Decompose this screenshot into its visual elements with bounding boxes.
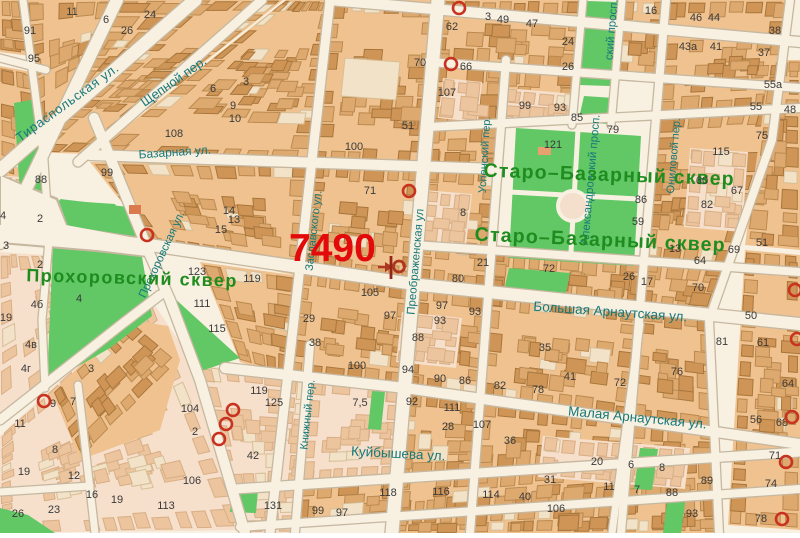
svg-text:11: 11 [603, 481, 614, 493]
svg-text:99: 99 [519, 100, 531, 112]
svg-text:19: 19 [0, 312, 12, 324]
svg-text:38: 38 [769, 25, 781, 37]
svg-text:55а: 55а [764, 79, 783, 91]
svg-text:89: 89 [701, 475, 713, 487]
svg-text:88: 88 [412, 332, 424, 344]
svg-text:51: 51 [756, 237, 768, 249]
svg-text:123: 123 [188, 266, 206, 278]
svg-text:60: 60 [696, 175, 708, 187]
svg-text:11: 11 [66, 6, 77, 18]
svg-text:56: 56 [750, 414, 762, 426]
svg-text:37: 37 [758, 47, 770, 59]
svg-text:78: 78 [532, 384, 544, 396]
svg-text:111: 111 [444, 402, 461, 414]
svg-text:81: 81 [716, 336, 728, 348]
svg-text:48: 48 [784, 104, 796, 116]
svg-text:3: 3 [485, 11, 491, 23]
svg-text:62: 62 [446, 21, 458, 33]
svg-text:21: 21 [477, 257, 489, 269]
svg-text:100: 100 [345, 141, 363, 153]
svg-text:121: 121 [544, 139, 562, 151]
svg-text:2: 2 [37, 213, 43, 225]
svg-text:28: 28 [442, 421, 454, 433]
svg-text:13: 13 [228, 214, 240, 226]
svg-text:125: 125 [265, 397, 283, 409]
svg-text:66: 66 [460, 61, 472, 73]
svg-text:76: 76 [671, 366, 683, 378]
svg-text:93: 93 [554, 102, 566, 114]
svg-text:80: 80 [452, 273, 464, 285]
svg-text:6: 6 [210, 83, 216, 95]
svg-text:95: 95 [28, 53, 40, 65]
svg-text:113: 113 [157, 500, 175, 512]
svg-text:59: 59 [632, 216, 644, 228]
svg-text:71: 71 [364, 185, 376, 197]
svg-text:51: 51 [402, 120, 414, 132]
svg-text:4б: 4б [31, 299, 43, 311]
svg-text:43а: 43а [679, 41, 698, 53]
svg-text:24: 24 [562, 36, 574, 48]
svg-text:7: 7 [634, 484, 640, 496]
svg-text:82: 82 [494, 380, 506, 392]
svg-text:8: 8 [52, 444, 58, 456]
svg-text:3: 3 [3, 240, 9, 252]
svg-text:119: 119 [243, 273, 261, 285]
svg-text:90: 90 [434, 373, 446, 385]
svg-text:16: 16 [645, 5, 657, 17]
svg-text:26: 26 [12, 508, 24, 520]
svg-text:75: 75 [756, 130, 768, 142]
svg-text:29: 29 [303, 313, 315, 325]
svg-text:47: 47 [526, 18, 538, 30]
svg-text:72: 72 [614, 377, 626, 389]
svg-text:15: 15 [215, 224, 227, 236]
svg-text:70: 70 [692, 282, 704, 294]
svg-text:92: 92 [406, 396, 418, 408]
svg-text:3: 3 [243, 76, 249, 88]
svg-text:105: 105 [361, 287, 379, 299]
svg-text:2: 2 [37, 259, 43, 271]
svg-text:114: 114 [482, 489, 500, 501]
svg-text:79: 79 [607, 124, 619, 136]
svg-text:86: 86 [635, 194, 647, 206]
svg-text:8: 8 [659, 462, 665, 474]
svg-text:41: 41 [564, 371, 576, 383]
svg-text:11: 11 [14, 418, 25, 430]
svg-text:99: 99 [312, 505, 324, 517]
svg-text:99: 99 [101, 167, 113, 179]
svg-text:93: 93 [434, 315, 446, 327]
svg-text:10: 10 [229, 113, 241, 125]
svg-text:2: 2 [192, 426, 198, 438]
svg-text:3: 3 [88, 363, 94, 375]
svg-text:116: 116 [432, 486, 450, 498]
svg-text:38: 38 [309, 337, 321, 349]
svg-text:19: 19 [18, 466, 30, 478]
svg-text:17: 17 [641, 276, 653, 288]
svg-text:118: 118 [379, 487, 397, 499]
svg-text:104: 104 [181, 403, 199, 415]
svg-text:50: 50 [745, 310, 757, 322]
svg-text:9: 9 [230, 100, 236, 112]
svg-text:93: 93 [469, 306, 481, 318]
svg-text:16: 16 [86, 489, 98, 501]
svg-text:4: 4 [0, 210, 6, 222]
svg-text:55: 55 [750, 101, 762, 113]
svg-text:46: 46 [690, 12, 702, 24]
svg-text:97: 97 [336, 507, 348, 519]
svg-text:82: 82 [701, 199, 713, 211]
svg-text:6: 6 [628, 459, 634, 471]
svg-text:41: 41 [710, 41, 722, 53]
svg-text:20: 20 [591, 456, 603, 468]
svg-text:64: 64 [782, 378, 794, 390]
svg-text:72: 72 [543, 263, 555, 275]
svg-text:108: 108 [165, 128, 183, 140]
svg-text:106: 106 [547, 503, 565, 515]
svg-text:107: 107 [473, 419, 491, 431]
svg-text:35: 35 [539, 342, 551, 354]
svg-text:97: 97 [436, 300, 448, 312]
svg-text:93: 93 [686, 508, 698, 520]
svg-text:4в: 4в [25, 339, 37, 351]
svg-text:115: 115 [208, 323, 226, 335]
svg-text:26: 26 [562, 61, 574, 73]
svg-text:97: 97 [384, 310, 396, 322]
svg-text:86: 86 [459, 375, 471, 387]
svg-text:88: 88 [35, 174, 47, 186]
svg-text:4: 4 [76, 293, 82, 305]
svg-text:131: 131 [264, 500, 282, 512]
svg-text:40: 40 [519, 491, 531, 503]
svg-text:85: 85 [571, 112, 583, 124]
svg-text:119: 119 [250, 385, 268, 397]
svg-text:115: 115 [712, 146, 730, 158]
svg-text:107: 107 [438, 87, 456, 99]
svg-text:26: 26 [623, 271, 635, 283]
svg-text:23: 23 [48, 504, 60, 516]
svg-text:7490: 7490 [289, 227, 376, 270]
svg-text:36: 36 [504, 435, 516, 447]
svg-text:6: 6 [103, 14, 109, 26]
svg-text:74: 74 [765, 478, 777, 490]
svg-text:26: 26 [121, 25, 133, 37]
svg-text:100: 100 [348, 360, 366, 372]
svg-text:7,5: 7,5 [352, 397, 367, 409]
svg-text:13: 13 [669, 243, 681, 255]
svg-text:24: 24 [144, 9, 156, 21]
svg-text:61: 61 [757, 337, 769, 349]
svg-text:31: 31 [544, 474, 556, 486]
svg-text:69: 69 [728, 244, 740, 256]
svg-text:111: 111 [194, 298, 211, 310]
svg-text:91: 91 [24, 25, 36, 37]
svg-text:19: 19 [111, 494, 123, 506]
svg-text:78: 78 [755, 513, 767, 525]
svg-text:12: 12 [68, 470, 80, 482]
svg-text:106: 106 [183, 475, 201, 487]
svg-text:88: 88 [666, 487, 678, 499]
svg-text:42: 42 [247, 450, 259, 462]
svg-text:44: 44 [708, 12, 720, 24]
svg-text:4г: 4г [21, 363, 31, 375]
svg-text:7: 7 [70, 396, 76, 408]
svg-text:67: 67 [731, 185, 743, 197]
svg-text:8: 8 [460, 207, 466, 219]
svg-text:64: 64 [694, 255, 706, 267]
svg-text:70: 70 [414, 57, 426, 69]
svg-text:49: 49 [497, 14, 509, 26]
svg-text:94: 94 [402, 364, 414, 376]
